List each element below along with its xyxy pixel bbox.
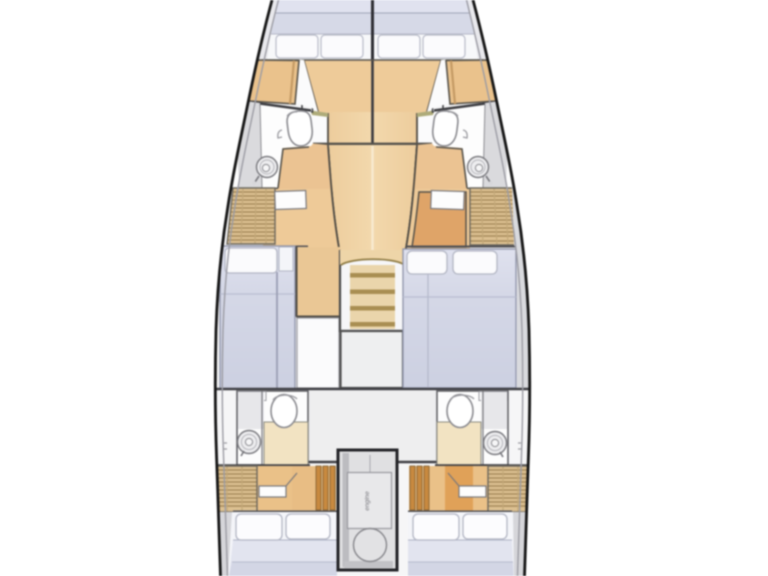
svg-text:engine: engine xyxy=(364,491,371,511)
